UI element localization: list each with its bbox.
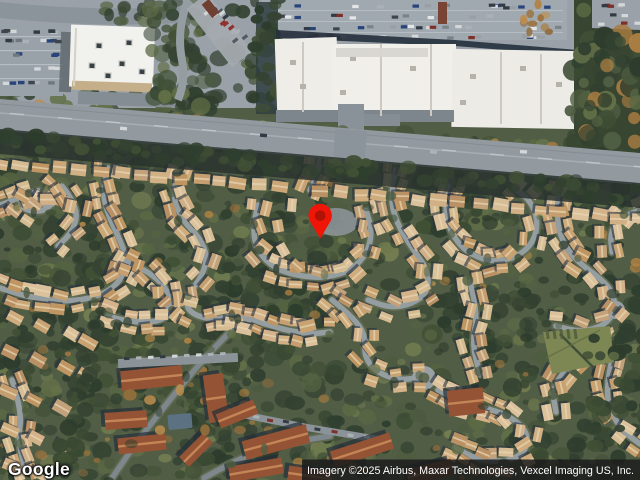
svg-text:Imagery ©2025 Airbus, Maxar Te: Imagery ©2025 Airbus, Maxar Technologies… <box>307 465 634 477</box>
svg-text:Google: Google <box>8 459 70 479</box>
